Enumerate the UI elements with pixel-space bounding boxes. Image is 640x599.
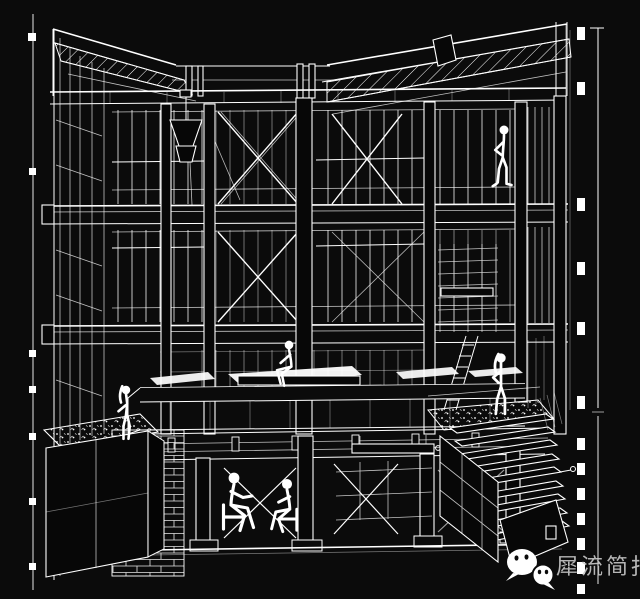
planter-side [148,431,164,557]
watermark-text: 犀流简报 [556,555,640,580]
drawing-canvas: 犀流简报 [0,0,640,599]
planter-front [46,431,148,577]
planter [44,414,164,577]
section-perspective-drawing: 犀流简报 [0,0,640,599]
